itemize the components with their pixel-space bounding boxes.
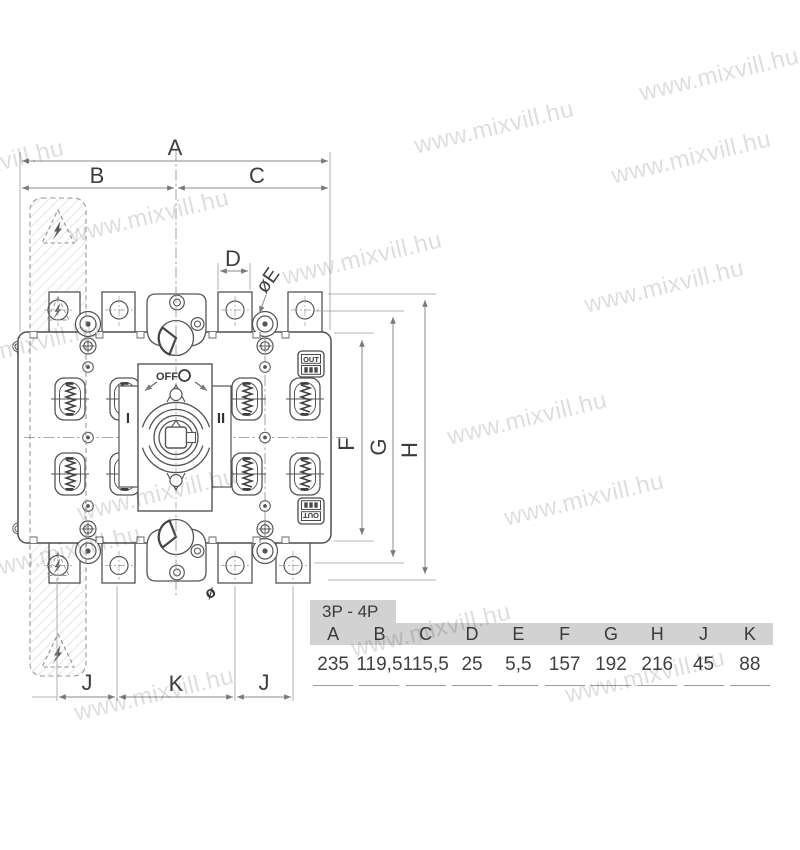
dim-label-j-left: J [82, 670, 93, 695]
body-screw [260, 501, 271, 512]
clamp-terminal [51, 378, 89, 420]
table-value-cell: 5,5 [495, 647, 541, 686]
diameter-mark: ø [202, 583, 219, 603]
table-value-cell: 192 [588, 647, 634, 686]
table-value-cell: 115,5 [403, 647, 449, 686]
body-screw [83, 501, 94, 512]
watermark-text: www.mixvill.hu [609, 125, 774, 190]
dim-label-j-right: J [259, 670, 270, 695]
body-screw [260, 362, 271, 373]
position-2-label: II [217, 410, 225, 427]
watermark-text: www.mixvill.hu [445, 386, 610, 451]
clamp-terminal [286, 378, 324, 420]
dim-label-d: D [225, 246, 241, 271]
watermark-text: www.mixvill.hu [502, 467, 667, 532]
table-header-row: ABCDEFGHJK [310, 623, 773, 645]
watermark-text: www.mixvill.hu [637, 42, 800, 107]
dim-label-f: F [334, 437, 359, 450]
table-col-header: A [310, 623, 356, 645]
table-value-cell: 88 [727, 647, 773, 686]
table-col-header: F [541, 623, 587, 645]
table-title: 3P - 4P [310, 600, 396, 623]
dim-label-b: B [90, 163, 105, 188]
table-col-header: H [634, 623, 680, 645]
value-underline [684, 685, 724, 686]
table-col-header: E [495, 623, 541, 645]
dim-label-g: G [366, 438, 391, 455]
table-values-row: 235119,5115,5255,51571922164588 [310, 647, 773, 686]
table-value-cell: 25 [449, 647, 495, 686]
value-underline [545, 685, 585, 686]
out-symbol-bottom [298, 498, 324, 524]
dim-label-c: C [249, 163, 265, 188]
value-underline [591, 685, 631, 686]
value-underline [313, 685, 353, 686]
dim-label-k: K [169, 671, 184, 696]
watermark-text: www.mixvill.hu [582, 254, 747, 319]
table-col-header: D [449, 623, 495, 645]
value-underline [637, 685, 677, 686]
value-underline [498, 685, 538, 686]
clamp-terminal [51, 453, 89, 495]
table-col-header: C [403, 623, 449, 645]
body-screw [83, 432, 94, 443]
position-1-label: I [126, 410, 130, 427]
table-col-header: G [588, 623, 634, 645]
table-col-header: B [356, 623, 402, 645]
off-label: OFF [156, 371, 178, 383]
value-underline [359, 685, 399, 686]
page: www.mixvill.huwww.mixvill.huwww.mixvill.… [0, 0, 800, 850]
dim-label-e: øE [252, 264, 285, 298]
value-underline [730, 685, 770, 686]
table-col-header: K [727, 623, 773, 645]
left-edge-clip [13, 341, 18, 534]
dimensions-table: 3P - 4P ABCDEFGHJK 235119,5115,5255,5157… [310, 600, 773, 686]
dim-label-h: H [397, 442, 422, 458]
table-value-cell: 235 [310, 647, 356, 686]
table-value-cell: 119,5 [356, 647, 402, 686]
body-screw [260, 432, 271, 443]
clamp-terminal [286, 453, 324, 495]
table-col-header: J [680, 623, 726, 645]
table-value-cell: 157 [541, 647, 587, 686]
clamp-terminal [228, 453, 266, 495]
table-value-cell: 216 [634, 647, 680, 686]
table-value-cell: 45 [680, 647, 726, 686]
value-underline [452, 685, 492, 686]
shaft-square-hole [166, 427, 187, 448]
clamp-terminal [228, 378, 266, 420]
dim-label-a: A [168, 135, 183, 160]
out-symbol-top [298, 351, 324, 377]
value-underline [406, 685, 446, 686]
body-screw [83, 362, 94, 373]
